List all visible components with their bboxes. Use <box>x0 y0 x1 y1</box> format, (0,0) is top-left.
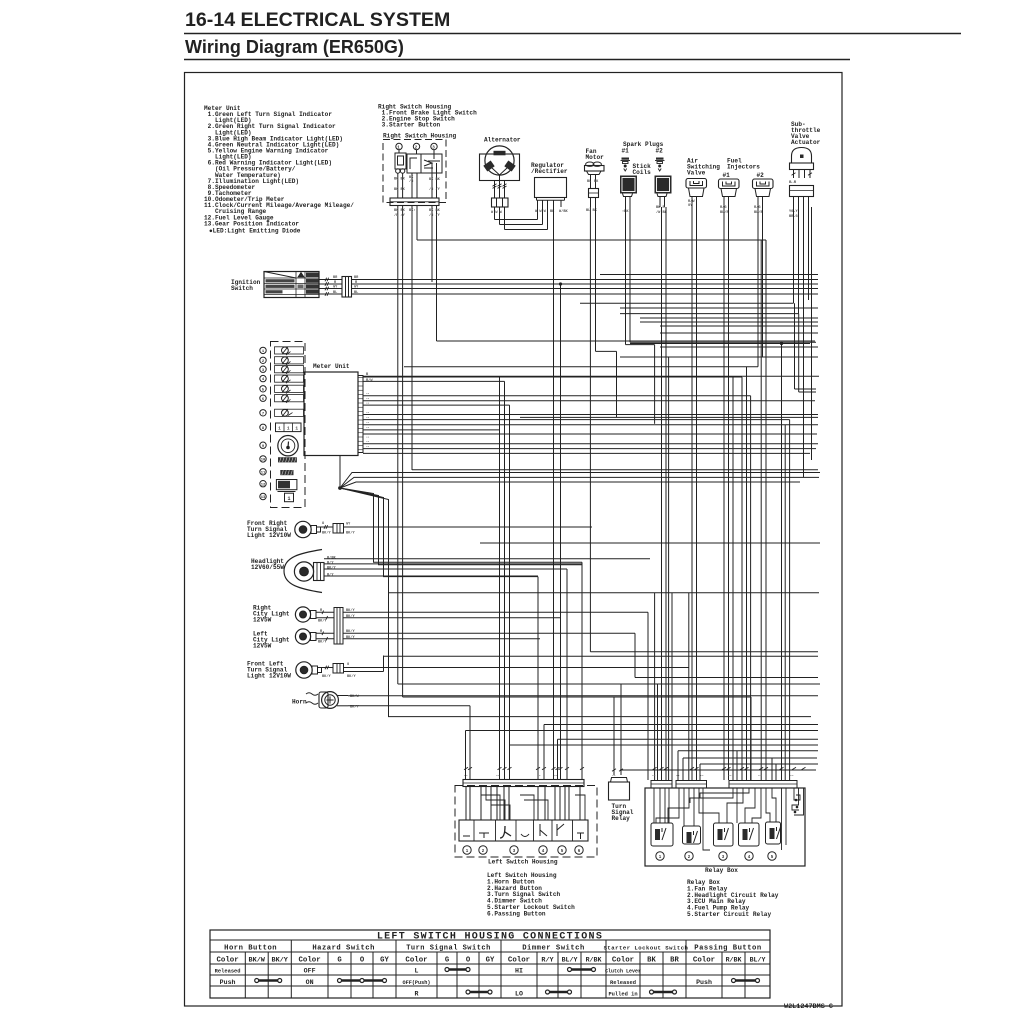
svg-text:BK BK: BK BK <box>394 209 406 213</box>
svg-text:Color: Color <box>405 957 427 965</box>
svg-text:▪▪: ▪▪ <box>366 398 370 401</box>
svg-text:/R /Y: /R /Y <box>429 213 441 218</box>
svg-text:#2: #2 <box>757 172 765 179</box>
svg-text:R/W: R/W <box>366 378 373 383</box>
svg-text:▪▪: ▪▪ <box>758 774 762 778</box>
svg-text:11: 11 <box>261 471 266 475</box>
svg-text:1: 1 <box>295 426 298 432</box>
svg-text:1: 1 <box>287 426 290 432</box>
svg-text:Turn Signal Switch: Turn Signal Switch <box>406 945 491 953</box>
svg-text:W/BK: W/BK <box>559 209 568 214</box>
svg-text:BK/Y: BK/Y <box>318 619 327 624</box>
svg-text:Color: Color <box>612 957 634 965</box>
svg-text:B↔R: B↔R <box>789 181 797 185</box>
svg-text:BK R: BK R <box>656 206 665 210</box>
svg-text:12: 12 <box>261 483 266 487</box>
svg-text:Hazard Switch: Hazard Switch <box>312 945 375 953</box>
svg-text:Dimmer Switch: Dimmer Switch <box>522 945 585 953</box>
svg-text:GY: GY <box>486 957 495 965</box>
svg-text:Color: Color <box>508 957 530 965</box>
svg-text:Coils: Coils <box>633 169 652 176</box>
svg-text:W2L1247BMS C: W2L1247BMS C <box>784 1003 833 1011</box>
svg-text:OFF(Push): OFF(Push) <box>402 980 430 986</box>
svg-text:Starter Lockout Switch: Starter Lockout Switch <box>604 945 689 952</box>
svg-text:▪▪: ▪▪ <box>728 774 732 778</box>
svg-text:Pulled in: Pulled in <box>608 992 637 998</box>
svg-text:Injectors: Injectors <box>727 164 760 171</box>
svg-text:3.Starter Button: 3.Starter Button <box>378 122 441 129</box>
svg-text:Left Switch Housing: Left Switch Housing <box>488 859 558 866</box>
svg-text:BK/Y: BK/Y <box>272 957 289 965</box>
svg-text:G: G <box>445 957 449 965</box>
svg-text:Relay Box: Relay Box <box>705 867 738 874</box>
svg-text:/Rectifier: /Rectifier <box>531 168 568 175</box>
svg-text:12V5W: 12V5W <box>253 643 272 650</box>
svg-text:Horn: Horn <box>292 699 307 706</box>
svg-text:Relay: Relay <box>612 815 631 822</box>
svg-text:BK BK: BK BK <box>429 209 441 213</box>
svg-text:BK BK: BK BK <box>429 178 441 182</box>
svg-text:BL: BL <box>587 180 591 184</box>
svg-text:Clutch Lever: Clutch Lever <box>605 969 641 975</box>
svg-text:▪▪: ▪▪ <box>496 774 500 778</box>
svg-text:BK/W: BK/W <box>350 694 359 699</box>
svg-text:Released: Released <box>610 980 636 986</box>
svg-text:#1: #1 <box>622 148 630 155</box>
svg-text:10: 10 <box>261 459 266 463</box>
svg-text:Motor: Motor <box>586 154 605 161</box>
svg-text:▪▪: ▪▪ <box>366 422 370 425</box>
svg-text:▪▪: ▪▪ <box>366 436 370 439</box>
svg-text:L: L <box>415 968 419 975</box>
svg-text:16-14 ELECTRICAL SYSTEM: 16-14 ELECTRICAL SYSTEM <box>185 9 450 31</box>
svg-text:Right Switch Housing: Right Switch Housing <box>383 133 456 140</box>
svg-text:LEFT SWITCH HOUSING CONNECTION: LEFT SWITCH HOUSING CONNECTIONS <box>377 932 603 943</box>
svg-text:12V60/55W: 12V60/55W <box>251 564 284 571</box>
svg-text:12V5W: 12V5W <box>253 617 272 624</box>
svg-text:GY: GY <box>380 957 389 965</box>
svg-text:Released: Released <box>215 969 241 975</box>
svg-text:Valve: Valve <box>687 170 706 177</box>
svg-text:BK/Y: BK/Y <box>347 674 356 679</box>
svg-text:/R /Y: /R /Y <box>394 213 406 218</box>
svg-text:R/BK: R/BK <box>327 556 336 561</box>
svg-text:▪▪: ▪▪ <box>700 774 704 778</box>
svg-text:▪▪: ▪▪ <box>366 427 370 430</box>
svg-text:Alternator: Alternator <box>484 137 521 144</box>
svg-text:R/Y: R/Y <box>327 561 334 566</box>
svg-text:BK/Y: BK/Y <box>350 705 359 710</box>
svg-text:HI: HI <box>515 968 523 975</box>
svg-text:Light 12V10W: Light 12V10W <box>247 532 291 539</box>
svg-text:Horn Button: Horn Button <box>224 945 277 953</box>
svg-text:▪▪: ▪▪ <box>366 445 370 448</box>
svg-text:BK BK: BK BK <box>394 188 406 192</box>
svg-text:▪▪: ▪▪ <box>366 441 370 444</box>
svg-text:ON: ON <box>306 979 314 986</box>
svg-text:BK/W: BK/W <box>249 957 266 965</box>
svg-text:1: 1 <box>287 496 290 502</box>
svg-text:BK▪: BK▪ <box>409 209 415 213</box>
svg-text:R/Y: R/Y <box>327 573 334 578</box>
svg-text:BK/Y: BK/Y <box>318 640 327 645</box>
svg-text:Switch: Switch <box>231 285 253 292</box>
svg-text:▪▪: ▪▪ <box>366 393 370 396</box>
svg-text:BL/Y: BL/Y <box>750 957 766 964</box>
svg-text:5.Starter Circuit Relay: 5.Starter Circuit Relay <box>687 911 771 918</box>
svg-text:BL/Y: BL/Y <box>562 957 578 964</box>
svg-text:13.Gear Position Indicator: 13.Gear Position Indicator <box>204 220 299 227</box>
svg-text:Color: Color <box>693 957 715 965</box>
svg-text:R/BK: R/BK <box>586 957 602 964</box>
svg-text:#1: #1 <box>723 172 731 179</box>
svg-text:O: O <box>466 957 471 965</box>
svg-text:BR: BR <box>670 957 679 965</box>
svg-text:Light 12V10W: Light 12V10W <box>247 673 291 680</box>
svg-text:BK/Y: BK/Y <box>327 566 336 571</box>
svg-text:▪▪: ▪▪ <box>366 402 370 405</box>
svg-text:LO: LO <box>515 991 523 998</box>
svg-text:Color: Color <box>217 957 239 965</box>
svg-text:BL: BL <box>333 291 337 295</box>
svg-text:G: G <box>337 957 341 965</box>
svg-text:#2: #2 <box>656 148 664 155</box>
svg-text:▪▪: ▪▪ <box>652 774 656 778</box>
svg-text:O: O <box>360 957 365 965</box>
svg-text:▪▪: ▪▪ <box>790 774 794 778</box>
svg-text:Push: Push <box>696 979 712 986</box>
svg-text:BK/Y: BK/Y <box>322 674 331 679</box>
svg-text:Passing Button: Passing Button <box>694 945 761 953</box>
svg-text:1: 1 <box>278 426 281 432</box>
svg-text:13: 13 <box>261 496 266 500</box>
svg-text:R: R <box>415 991 419 998</box>
svg-text:/R /Y: /R /Y <box>429 187 441 192</box>
svg-text:W W W: W W W <box>535 210 547 214</box>
svg-text:BK/Y: BK/Y <box>346 531 355 536</box>
svg-text:Color: Color <box>299 957 321 965</box>
svg-text:Meter Unit: Meter Unit <box>313 363 350 370</box>
svg-text:BK BK: BK BK <box>394 178 406 182</box>
svg-text:Push: Push <box>220 979 236 986</box>
svg-text:OFF: OFF <box>304 968 316 975</box>
svg-text:6.Passing Button: 6.Passing Button <box>487 910 546 917</box>
svg-text:BK: BK <box>647 957 656 965</box>
svg-text:BK/Y: BK/Y <box>322 531 331 536</box>
svg-text:R/G: R/G <box>720 205 726 210</box>
svg-text:Wiring Diagram (ER650G): Wiring Diagram (ER650G) <box>185 37 404 57</box>
svg-text:W W W: W W W <box>491 211 503 215</box>
svg-text:●LED:Light Emitting Diode: ●LED:Light Emitting Diode <box>209 228 301 235</box>
svg-text:G: G <box>347 663 349 667</box>
svg-text:▪▪: ▪▪ <box>366 411 370 414</box>
svg-text:R/BK: R/BK <box>726 957 742 964</box>
svg-text:Actuator: Actuator <box>791 139 821 146</box>
svg-text:R/G: R/G <box>754 205 760 210</box>
svg-text:R/Y: R/Y <box>541 957 554 965</box>
svg-text:▪▪: ▪▪ <box>366 416 370 419</box>
